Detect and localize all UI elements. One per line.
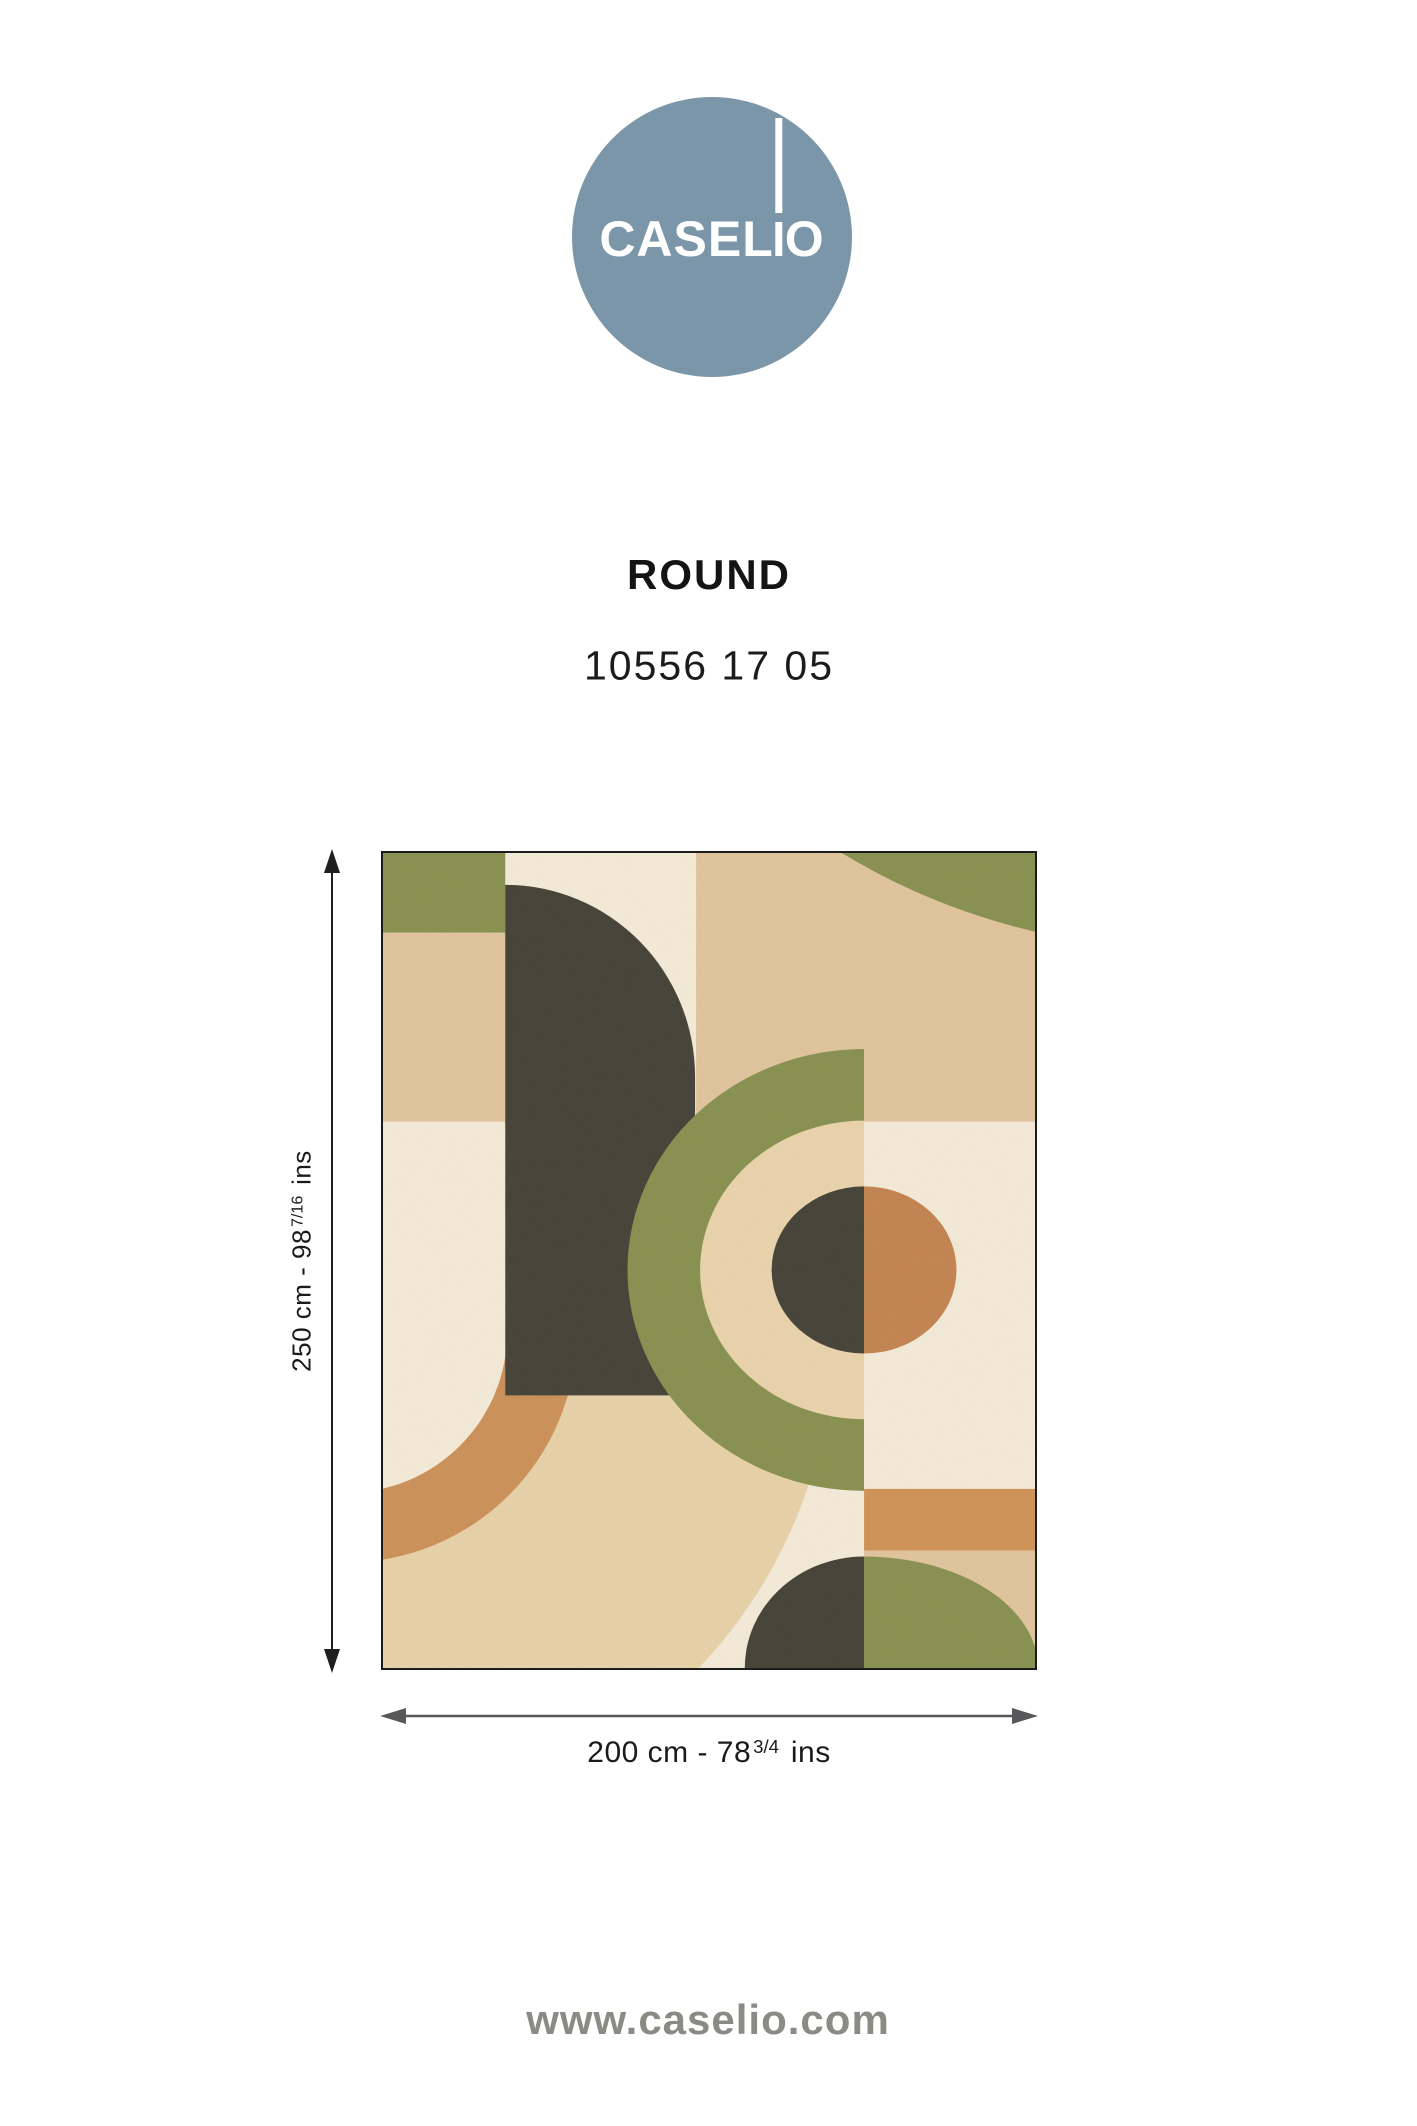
arrow-up-icon <box>324 849 340 873</box>
logo-i-bar-icon <box>774 220 785 256</box>
logo-text-left: CASEL <box>599 214 773 264</box>
page-title: ROUND <box>627 551 791 599</box>
caselio-logo: CASELO <box>572 97 852 377</box>
height-label-prefix: 250 cm - 98 <box>287 1229 317 1372</box>
arrow-right-icon <box>1012 1708 1038 1724</box>
width-dimension-label: 200 cm - 783/4 ins <box>587 1736 830 1770</box>
width-label-prefix: 200 cm - 78 <box>587 1736 751 1769</box>
product-sheet-page: CASELO ROUND 10556 17 05 <box>0 0 1417 2126</box>
height-label-fraction: 7/16 <box>288 1196 306 1227</box>
footer-website: www.caselio.com <box>526 1996 890 2044</box>
width-label-suffix: ins <box>791 1736 831 1769</box>
height-label-suffix: ins <box>287 1150 317 1185</box>
arrow-left-icon <box>380 1708 406 1724</box>
wallpaper-pattern-svg <box>383 853 1035 1668</box>
width-dimension-arrow <box>376 1701 1042 1731</box>
logo-text-right: O <box>785 214 825 264</box>
caselio-logo-wordmark: CASELO <box>599 214 824 264</box>
arrow-down-icon <box>324 1649 340 1673</box>
width-label-fraction: 3/4 <box>753 1736 779 1757</box>
wallpaper-pattern-figure <box>381 851 1037 1670</box>
pattern-texture-overlay <box>383 853 1035 1668</box>
product-reference: 10556 17 05 <box>584 643 834 690</box>
height-dimension-label: 250 cm - 987/16 ins <box>287 1150 318 1372</box>
height-dimension-arrow <box>318 846 346 1676</box>
